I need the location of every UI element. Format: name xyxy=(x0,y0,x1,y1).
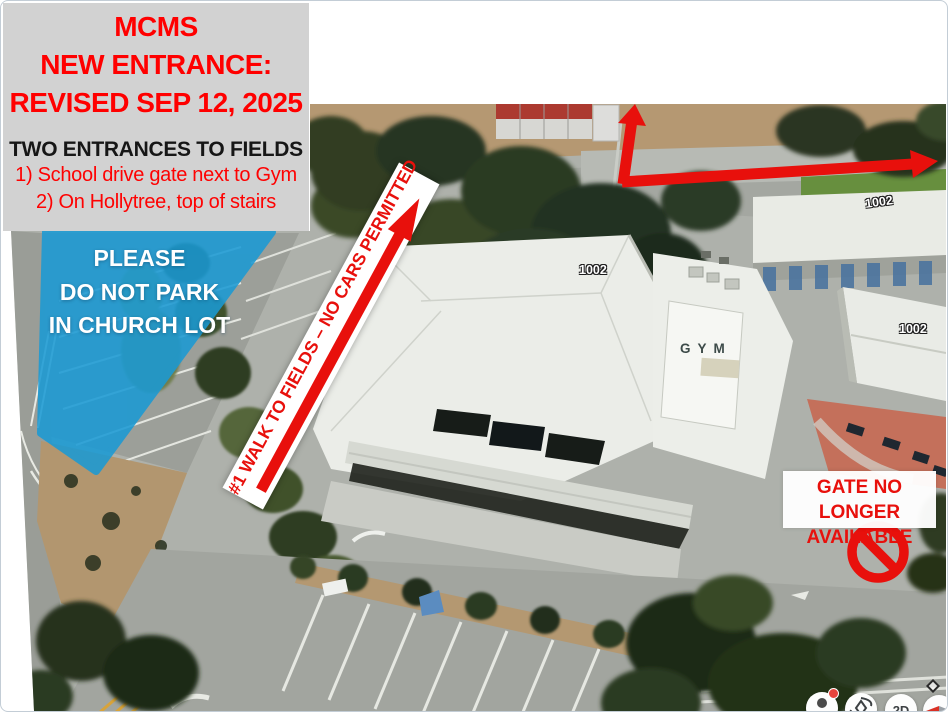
gate-line-2: AVAILABLE xyxy=(783,525,936,550)
title-line-1: MCMS xyxy=(3,8,309,46)
orbit-button[interactable] xyxy=(845,693,877,712)
compass-icon xyxy=(923,695,948,712)
subtitle: TWO ENTRANCES TO FIELDS xyxy=(3,138,309,162)
no-park-line-1: PLEASE xyxy=(37,242,242,276)
entrance-item-2: 2) On Hollytree, top of stairs xyxy=(3,189,309,216)
gym-roof-label: GYM xyxy=(680,341,732,356)
no-park-label: PLEASE DO NOT PARK IN CHURCH LOT xyxy=(37,242,242,343)
2d-button-label: 2D xyxy=(893,703,910,712)
title-line-3: REVISED SEP 12, 2025 xyxy=(3,84,309,122)
address-label-1002-side: 1002 xyxy=(899,322,927,336)
header-box: MCMS NEW ENTRANCE: REVISED SEP 12, 2025 … xyxy=(3,3,309,231)
compass-button[interactable] xyxy=(923,695,948,712)
street-view-button[interactable] xyxy=(806,692,838,712)
no-park-line-3: IN CHURCH LOT xyxy=(37,309,242,343)
gate-line-1: GATE NO LONGER xyxy=(783,475,936,525)
storage-units xyxy=(496,103,619,141)
entrance-item-1: 1) School drive gate next to Gym xyxy=(3,162,309,189)
title-line-2: NEW ENTRANCE: xyxy=(3,46,309,84)
gate-closed-sign: GATE NO LONGER AVAILABLE xyxy=(783,471,936,528)
notification-dot xyxy=(828,688,839,699)
address-label-1002-main: 1002 xyxy=(579,263,607,277)
orbit-icon xyxy=(845,693,877,712)
no-park-line-2: DO NOT PARK xyxy=(37,276,242,310)
slide: MCMS NEW ENTRANCE: REVISED SEP 12, 2025 … xyxy=(0,0,948,712)
